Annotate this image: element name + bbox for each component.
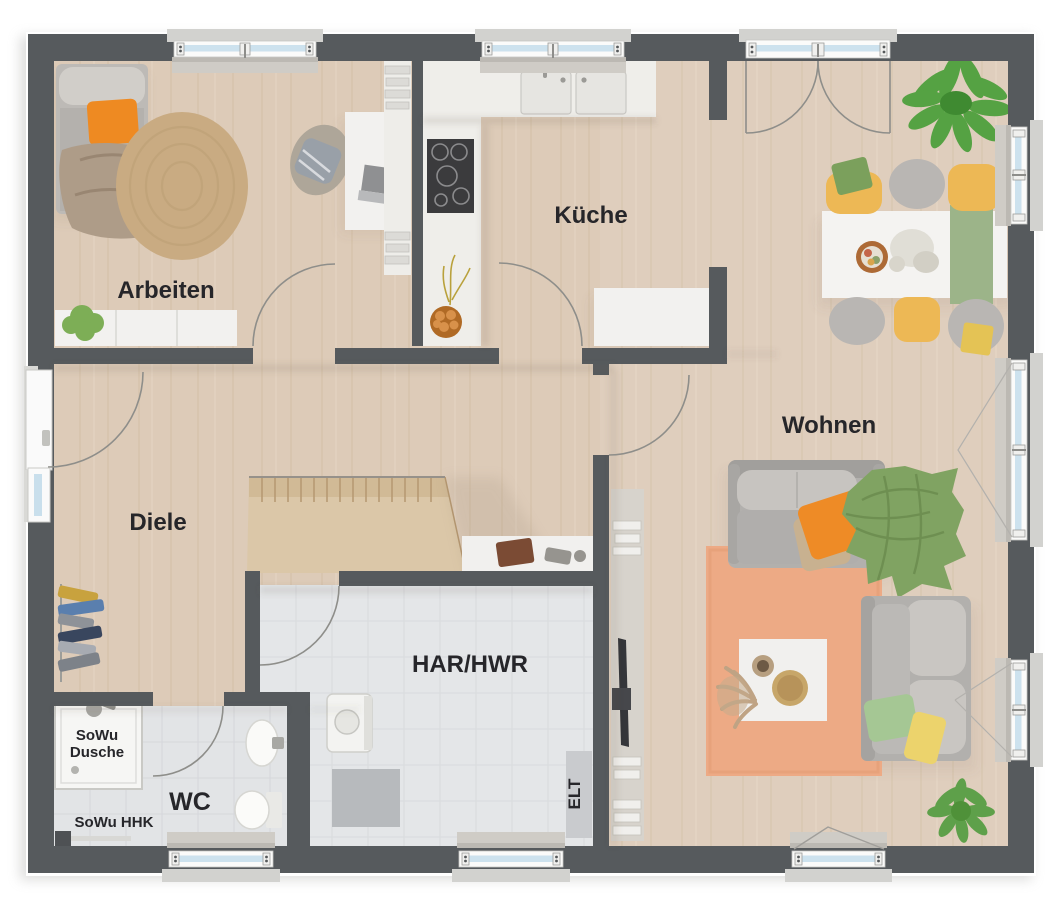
svg-text:Wohnen: Wohnen — [782, 412, 876, 439]
svg-text:Dusche: Dusche — [70, 744, 124, 761]
svg-text:HAR/HWR: HAR/HWR — [412, 651, 528, 678]
svg-text:Arbeiten: Arbeiten — [117, 277, 214, 304]
svg-text:SoWu HHK: SoWu HHK — [75, 814, 154, 831]
svg-text:Diele: Diele — [129, 509, 186, 536]
svg-text:WC: WC — [169, 788, 211, 816]
svg-text:Küche: Küche — [554, 202, 627, 229]
svg-text:ELT: ELT — [565, 778, 584, 809]
svg-text:SoWu: SoWu — [76, 727, 118, 744]
